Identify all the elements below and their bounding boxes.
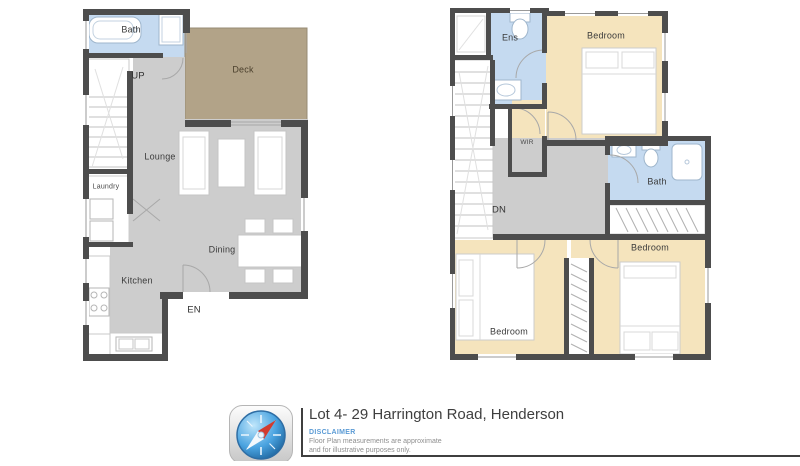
room-label-wir: WIR bbox=[520, 140, 533, 147]
floor-plan-page: { "floor_plans": { "ground": { "rooms": … bbox=[0, 0, 800, 457]
room-label-bedroom-left: Bedroom bbox=[490, 328, 528, 337]
coffee-table-icon bbox=[218, 139, 245, 187]
upper-floor-plan bbox=[450, 8, 713, 361]
footer-divider bbox=[301, 408, 303, 457]
disclaimer-heading: DISCLAIMER bbox=[309, 429, 356, 436]
bed-icon bbox=[582, 48, 656, 134]
disclaimer-line-2: and for illustrative purposes only. bbox=[309, 447, 411, 454]
shower-room bbox=[453, 12, 489, 56]
property-address-title: Lot 4- 29 Harrington Road, Henderson bbox=[309, 406, 564, 423]
room-label-bedroom-top: Bedroom bbox=[587, 32, 625, 41]
room-label-dining: Dining bbox=[209, 246, 236, 255]
room-label-lounge: Lounge bbox=[144, 153, 175, 162]
disclaimer-line-1: Floor Plan measurements are approximate bbox=[309, 438, 442, 445]
linen-wardrobe bbox=[608, 205, 705, 234]
washer-icon bbox=[90, 199, 113, 219]
sofa-icon bbox=[254, 131, 286, 195]
sink-icon bbox=[116, 337, 152, 351]
room-label-deck: Deck bbox=[232, 66, 253, 75]
shower-icon bbox=[672, 144, 702, 180]
mid-wardrobe bbox=[569, 258, 589, 354]
room-label-ens: Ens bbox=[502, 34, 518, 43]
dryer-icon bbox=[90, 221, 113, 241]
room-label-bath-ground: Bath bbox=[121, 26, 140, 35]
room-label-bath-upper: Bath bbox=[647, 178, 666, 187]
bed-icon bbox=[620, 262, 680, 354]
entry-label-en: EN bbox=[187, 305, 201, 315]
room-label-kitchen: Kitchen bbox=[121, 277, 152, 286]
room-label-laundry: Laundry bbox=[93, 184, 120, 191]
upper-floor-drawing bbox=[450, 8, 713, 361]
shower-icon bbox=[159, 14, 183, 45]
stair-label-dn: DN bbox=[492, 205, 506, 215]
room-label-bedroom-right: Bedroom bbox=[631, 244, 669, 253]
stair-label-up: UP bbox=[131, 71, 145, 81]
sofa-icon bbox=[179, 131, 209, 195]
staircase-down bbox=[453, 60, 493, 238]
deck-area bbox=[185, 28, 307, 127]
staircase-up bbox=[88, 59, 129, 171]
vanity-icon bbox=[491, 80, 521, 100]
